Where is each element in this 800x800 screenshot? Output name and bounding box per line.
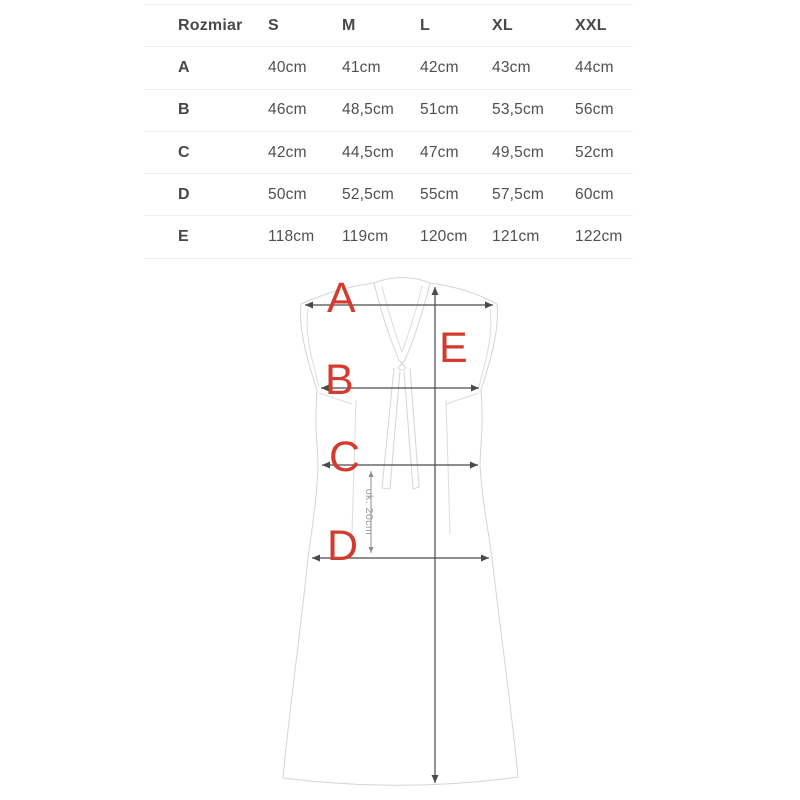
- label-C: C: [329, 433, 360, 481]
- hem-line: [283, 777, 518, 785]
- back-neckline: [374, 278, 430, 284]
- right-shoulder-line: [430, 283, 497, 304]
- right-armhole-edge: [481, 304, 497, 390]
- label-D: D: [327, 522, 358, 570]
- tie-knot: [398, 368, 406, 370]
- right-side-seam: [480, 390, 518, 777]
- right-vertical-dart: [446, 400, 450, 534]
- left-armhole-edge: [301, 304, 317, 390]
- label-E: E: [439, 324, 468, 372]
- right-armhole-inner: [479, 309, 491, 387]
- dress-sketch: [283, 278, 518, 786]
- approx-20cm-note: ok. 20cm: [363, 489, 375, 536]
- label-A: A: [327, 274, 356, 322]
- right-underarm-dart: [446, 393, 479, 404]
- collar-right-outer: [398, 283, 430, 368]
- collar-left-outer: [374, 283, 406, 368]
- size-chart-page: RozmiarSMLXLXXL A40cm41cm42cm43cm44cmB46…: [0, 0, 800, 800]
- left-side-seam: [283, 390, 318, 778]
- label-B: B: [325, 356, 354, 404]
- tie-ribbon-right: [404, 368, 419, 489]
- left-armhole-inner: [307, 309, 319, 387]
- dress-measurement-diagram: A B C D E ok. 20cm: [0, 0, 800, 800]
- tie-ribbon-left: [382, 368, 400, 489]
